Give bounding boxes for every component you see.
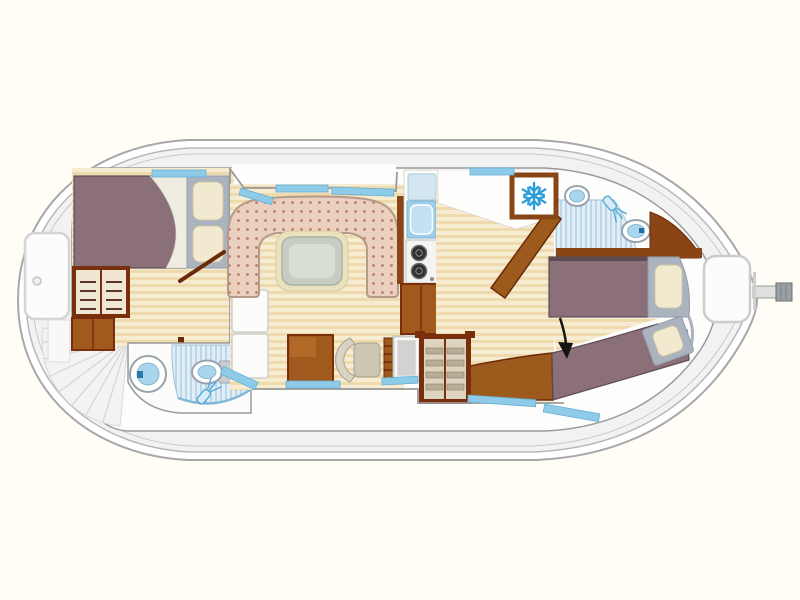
- salon-steps: [384, 338, 393, 378]
- toilet-bowl: [198, 366, 216, 379]
- stove: [406, 240, 437, 283]
- window: [382, 376, 418, 385]
- shelf: [426, 372, 443, 378]
- boat-floor-plan: [0, 0, 800, 600]
- bow-pillow: [193, 182, 223, 220]
- aft-wardrobe: [415, 331, 475, 404]
- shelf: [447, 372, 464, 378]
- window: [276, 185, 328, 192]
- aft-washbasin-water: [570, 190, 585, 202]
- chair-seat: [354, 343, 380, 377]
- galley: [397, 170, 441, 334]
- desk-top: [290, 337, 316, 357]
- dinette-table: [276, 231, 348, 291]
- salon-sideboard: [232, 334, 268, 378]
- rudder-tiller: [753, 283, 792, 301]
- window: [470, 168, 514, 175]
- rudder-tip: [776, 283, 792, 301]
- aft-pillow: [655, 265, 682, 308]
- galley-wall: [397, 196, 404, 284]
- bow-wardrobe: [72, 266, 130, 318]
- galley-sink-basin: [411, 205, 433, 234]
- chair: [336, 338, 380, 382]
- hatch-handle: [33, 277, 41, 285]
- stern-deck-hatch: [704, 256, 750, 322]
- drainboard: [408, 174, 436, 200]
- appliance-door: [396, 339, 417, 377]
- salon-recess: [232, 164, 396, 171]
- table-center: [289, 244, 335, 278]
- aft-berth: [549, 257, 648, 317]
- bow-deck-panel: [48, 320, 70, 362]
- stern-slot: [753, 272, 756, 310]
- bow-deck-hatch: [25, 233, 69, 319]
- window: [152, 170, 206, 177]
- burner: [412, 246, 427, 261]
- stove-knob: [430, 277, 434, 281]
- aft-berth-edge: [549, 257, 648, 261]
- shelf: [426, 348, 443, 354]
- refrigerator: [512, 175, 556, 217]
- shelf: [447, 348, 464, 354]
- boat-floor-plan-image: [0, 0, 800, 600]
- bow-cabin: [72, 168, 234, 352]
- washbasin-tap: [137, 371, 143, 378]
- toilet-button: [639, 228, 644, 233]
- shelf: [447, 384, 464, 390]
- stern-deck: [704, 256, 756, 322]
- shelf: [447, 360, 464, 366]
- window: [286, 381, 340, 388]
- burner: [412, 264, 427, 279]
- shelf: [426, 384, 443, 390]
- shelf: [426, 360, 443, 366]
